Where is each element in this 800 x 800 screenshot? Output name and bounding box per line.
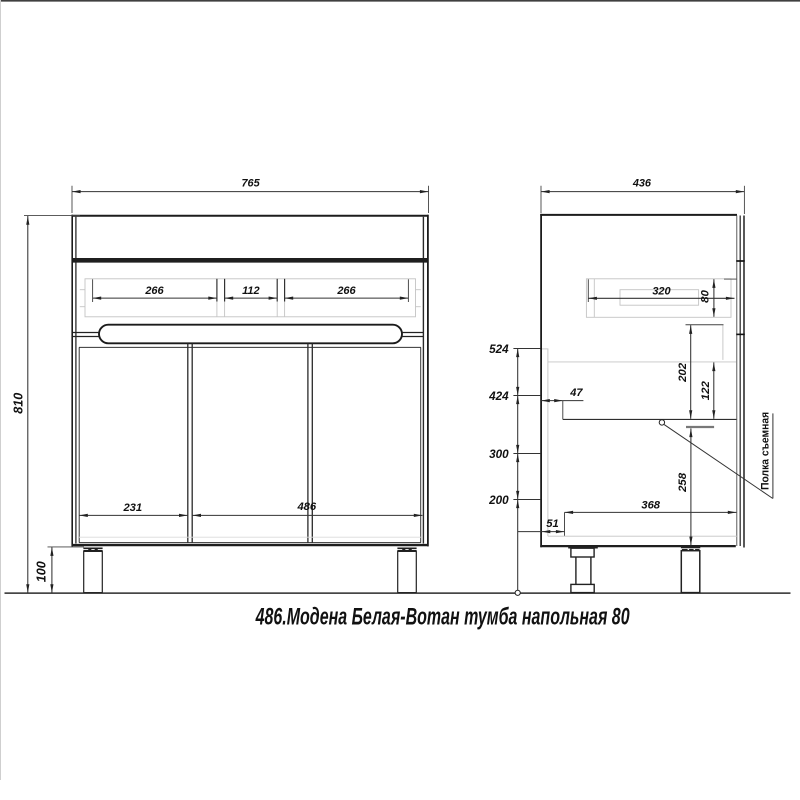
svg-text:258: 258	[677, 472, 689, 493]
svg-text:524: 524	[489, 343, 509, 356]
svg-text:51: 51	[546, 518, 558, 530]
svg-text:424: 424	[488, 390, 509, 403]
svg-text:112: 112	[242, 285, 260, 297]
svg-text:100: 100	[35, 561, 49, 582]
svg-text:486.Модена Белая-Вотан тумба н: 486.Модена Белая-Вотан тумба напольная 8…	[255, 603, 630, 630]
svg-text:320: 320	[652, 286, 671, 298]
svg-text:231: 231	[122, 502, 142, 514]
svg-text:Полка съемная: Полка съемная	[760, 412, 772, 490]
svg-text:80: 80	[699, 290, 711, 303]
svg-text:810: 810	[12, 393, 26, 414]
svg-text:436: 436	[632, 178, 652, 190]
svg-text:266: 266	[336, 285, 356, 297]
svg-text:486: 486	[296, 501, 316, 513]
svg-text:765: 765	[242, 178, 261, 190]
svg-text:300: 300	[489, 448, 509, 461]
svg-text:202: 202	[677, 362, 689, 383]
svg-text:200: 200	[488, 494, 509, 507]
svg-text:47: 47	[569, 387, 583, 399]
svg-text:368: 368	[641, 499, 660, 511]
svg-text:122: 122	[700, 381, 712, 401]
svg-text:266: 266	[144, 285, 164, 297]
